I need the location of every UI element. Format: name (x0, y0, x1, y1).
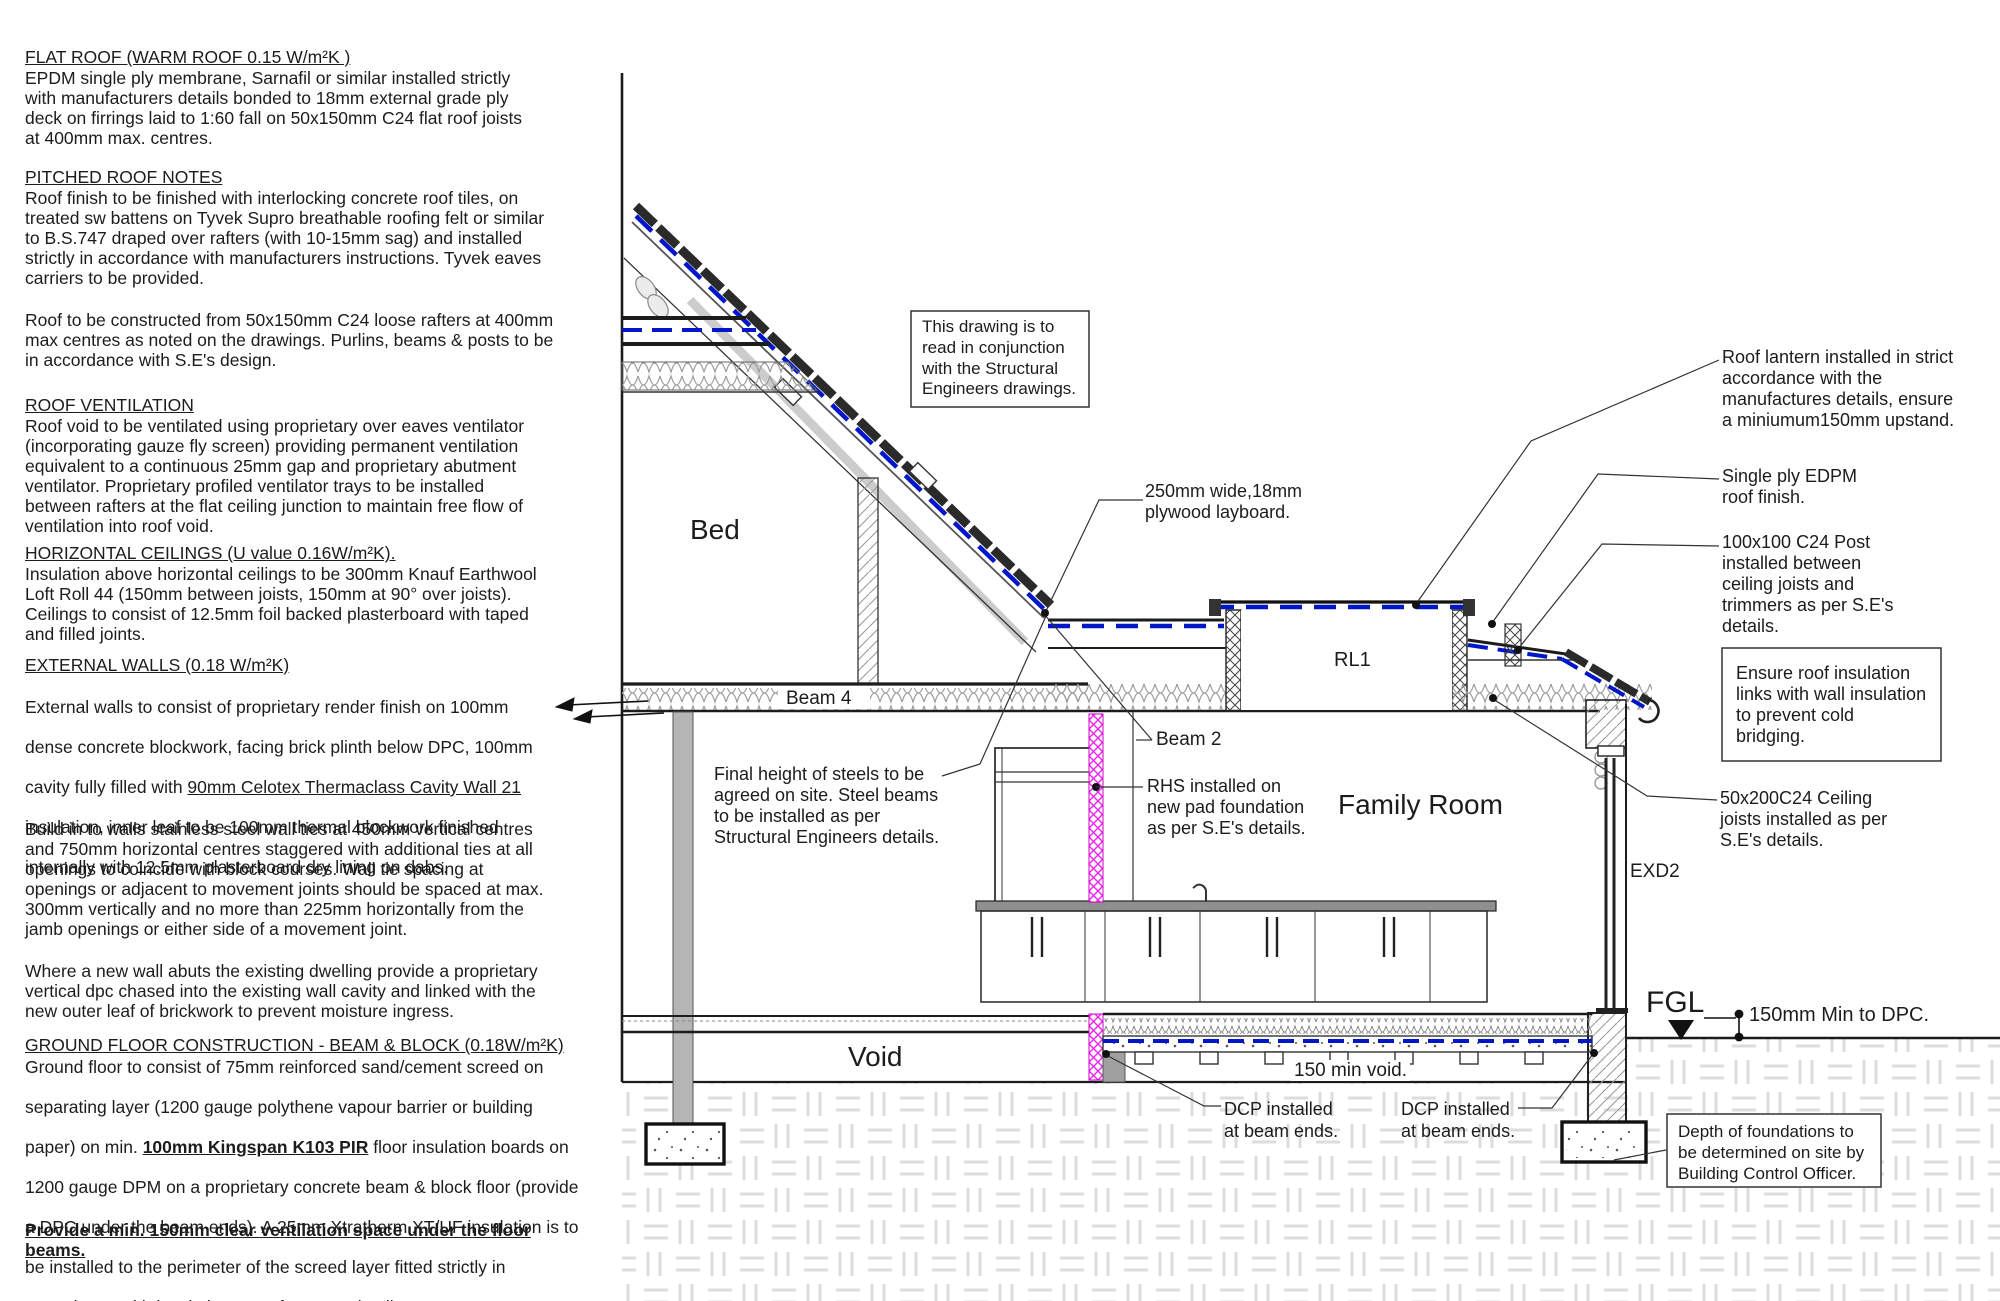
architectural-section-sheet: FLAT ROOF (WARM ROOF 0.15 W/m²K ) EPDM s… (0, 0, 2000, 1301)
beam-block-floor (1103, 1014, 1592, 1064)
callout-rhs: RHS installed on new pad foundation as p… (1147, 776, 1306, 839)
kitchen-units (976, 712, 1496, 1002)
ceilings-body: Insulation above horizontal ceilings to … (25, 564, 537, 644)
label-beam4: Beam 4 (786, 688, 851, 709)
external-walls-heading: EXTERNAL WALLS (0.18 W/m²K) (25, 655, 289, 675)
callout-roof-lantern: Roof lantern installed in strict accorda… (1722, 347, 1954, 431)
walls-line: dense concrete blockwork, facing brick p… (25, 737, 533, 757)
external-walls-p2: Build in to walls stainless steel wall t… (25, 819, 544, 939)
room-label-void: Void (848, 1042, 903, 1072)
ground-line-pre: paper) on min. (25, 1137, 143, 1157)
ground-line: be installed to the perimeter of the scr… (25, 1257, 579, 1277)
walls-line: External walls to consist of proprietary… (25, 697, 533, 717)
callout-depth: Depth of foundations to be determined on… (1678, 1122, 1864, 1184)
ground-line: separating layer (1200 gauge polythene v… (25, 1097, 579, 1117)
room-label-bed: Bed (690, 515, 740, 545)
label-fgl: FGL (1646, 988, 1704, 1018)
roof-ventilation-heading: ROOF VENTILATION (25, 395, 194, 415)
label-min-void: 150 min void. (1291, 1060, 1410, 1081)
ground-floor-body: Ground floor to consist of 75mm reinforc… (25, 1057, 579, 1301)
ground-line: accordance with insulation manufacturers… (25, 1297, 579, 1301)
callout-plywood: 250mm wide,18mm plywood layboard. (1145, 481, 1302, 523)
ground-line: paper) on min. 100mm Kingspan K103 PIR f… (25, 1137, 579, 1157)
ventilation-emphasis-note: Provide a min. 150mm clear ventilation s… (25, 1220, 531, 1260)
label-dim-dpc: 150mm Min to DPC. (1749, 1004, 1929, 1026)
callout-ensure: Ensure roof insulation links with wall i… (1736, 663, 1926, 747)
pitched-roof-heading: PITCHED ROOF NOTES (25, 167, 222, 187)
stud-wall (858, 478, 878, 683)
label-rl1: RL1 (1334, 649, 1371, 671)
label-exd2: EXD2 (1630, 861, 1680, 882)
walls-line: cavity fully filled with 90mm Celotex Th… (25, 777, 533, 797)
pitched-roof-body: Roof finish to be finished with interloc… (25, 188, 544, 288)
ground-line: Ground floor to consist of 75mm reinforc… (25, 1057, 579, 1077)
walls-line-underlined: 90mm Celotex Thermaclass Cavity Wall 21 (187, 777, 521, 797)
flat-roof-body: EPDM single ply membrane, Sarnafil or si… (25, 68, 522, 148)
label-beam2: Beam 2 (1156, 729, 1221, 750)
ground-floor-heading: GROUND FLOOR CONSTRUCTION - BEAM & BLOCK… (25, 1035, 564, 1055)
callout-post: 100x100 C24 Post installed between ceili… (1722, 532, 1893, 637)
tap-icon (1193, 885, 1206, 901)
callout-ceiling-joists: 50x200C24 Ceiling joists installed as pe… (1720, 788, 1887, 851)
roof-ventilation-body: Roof void to be ventilated using proprie… (25, 416, 524, 536)
pitched-roof-body2: Roof to be constructed from 50x150mm C24… (25, 310, 553, 370)
flat-roof-heading: FLAT ROOF (WARM ROOF 0.15 W/m²K ) (25, 47, 350, 67)
label-dcp-left: DCP installed at beam ends. (1224, 1098, 1338, 1142)
callout-conjunction: This drawing is to read in conjunction w… (922, 317, 1076, 400)
ground-line-bold: 100mm Kingspan K103 PIR (143, 1137, 369, 1157)
walls-line-pre: cavity fully filled with (25, 777, 187, 797)
pitched-roof (624, 206, 1051, 652)
callout-final-height: Final height of steels to be agreed on s… (714, 764, 939, 848)
room-label-family: Family Room (1338, 790, 1503, 820)
label-dcp-right: DCP installed at beam ends. (1401, 1098, 1515, 1142)
external-walls-p3: Where a new wall abuts the existing dwel… (25, 961, 538, 1021)
callout-single-ply: Single ply EDPM roof finish. (1722, 466, 1857, 508)
ground-line-post: floor insulation boards on (368, 1137, 568, 1157)
ground-line: 1200 gauge DPM on a proprietary concrete… (25, 1177, 579, 1197)
upper-flat-roof (622, 318, 820, 392)
ceilings-heading: HORIZONTAL CEILINGS (U value 0.16W/m²K). (25, 543, 395, 563)
